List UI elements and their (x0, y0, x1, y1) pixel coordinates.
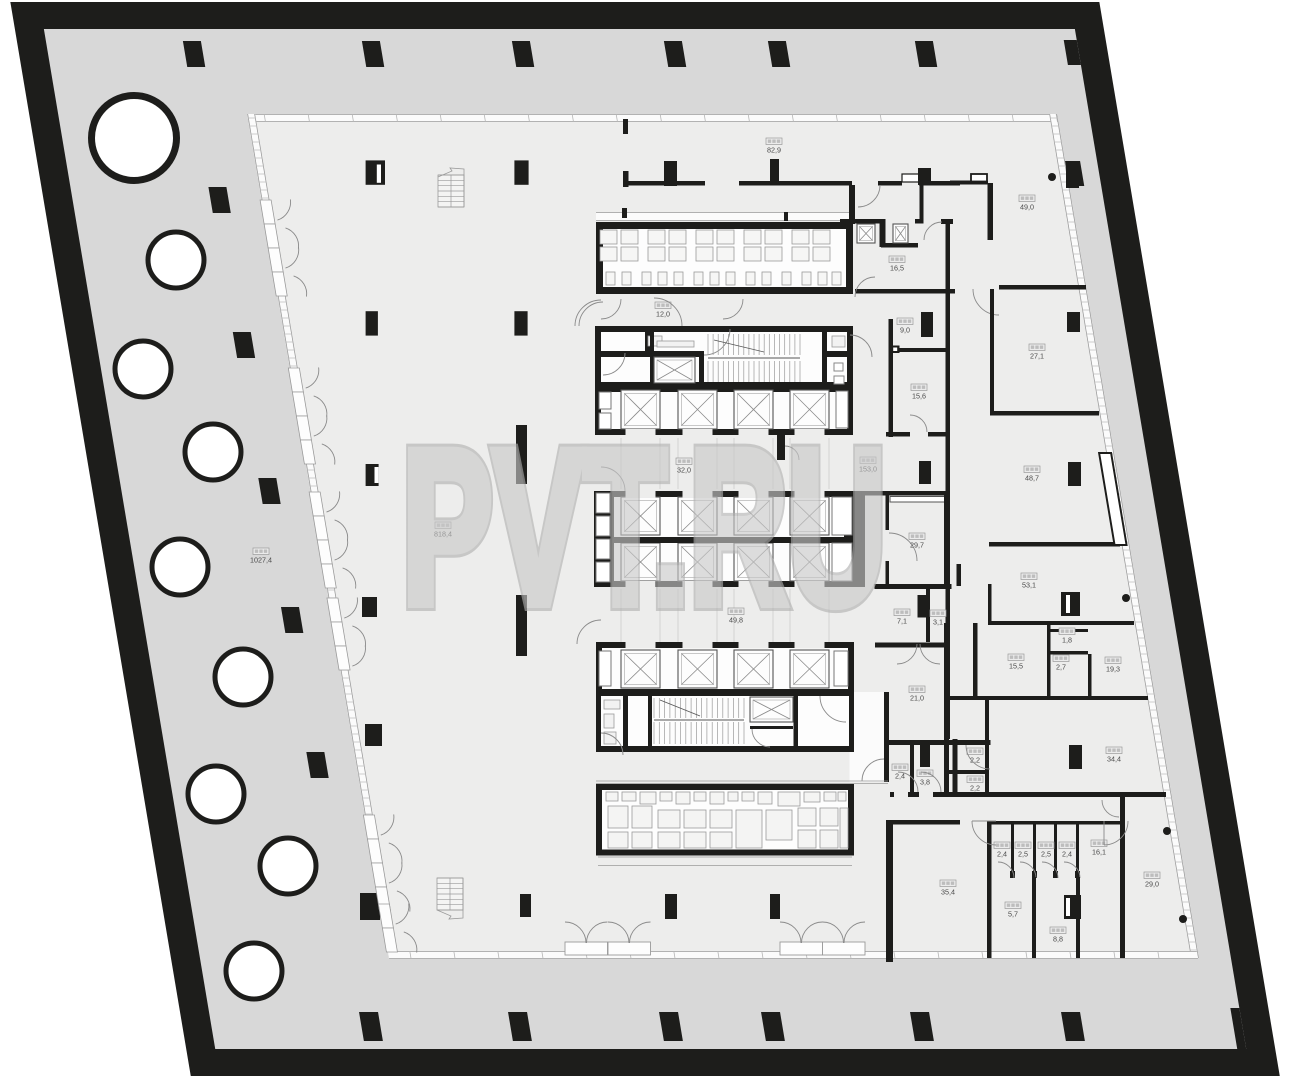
svg-text:7,1: 7,1 (897, 617, 907, 626)
svg-text:27,1: 27,1 (1030, 352, 1044, 361)
svg-text:5,7: 5,7 (1008, 910, 1018, 919)
svg-text:3,1: 3,1 (933, 618, 943, 627)
svg-text:49,0: 49,0 (1020, 203, 1034, 212)
svg-text:29,0: 29,0 (1145, 880, 1159, 889)
svg-text:21,0: 21,0 (910, 694, 924, 703)
svg-text:3,8: 3,8 (920, 778, 930, 787)
svg-text:2,7: 2,7 (1056, 663, 1066, 672)
svg-text:35,4: 35,4 (941, 888, 955, 897)
svg-text:9,0: 9,0 (900, 326, 910, 335)
svg-text:15,6: 15,6 (912, 392, 926, 401)
svg-text:34,4: 34,4 (1107, 755, 1121, 764)
svg-text:16,1: 16,1 (1092, 848, 1106, 857)
svg-text:15,5: 15,5 (1009, 662, 1023, 671)
svg-text:2,2: 2,2 (970, 784, 980, 793)
svg-text:2,4: 2,4 (1062, 850, 1072, 859)
svg-text:53,1: 53,1 (1022, 581, 1036, 590)
svg-text:48,7: 48,7 (1025, 474, 1039, 483)
svg-text:2,5: 2,5 (1018, 850, 1028, 859)
svg-text:2,4: 2,4 (997, 850, 1007, 859)
svg-text:29,7: 29,7 (910, 541, 924, 550)
svg-text:PVT.RU: PVT.RU (402, 404, 886, 650)
svg-text:19,3: 19,3 (1106, 665, 1120, 674)
svg-text:1,8: 1,8 (1062, 636, 1072, 645)
svg-text:1027,4: 1027,4 (250, 556, 272, 565)
svg-text:12,0: 12,0 (656, 310, 670, 319)
svg-text:82,9: 82,9 (767, 146, 781, 155)
svg-text:2,5: 2,5 (1041, 850, 1051, 859)
svg-text:16,5: 16,5 (890, 264, 904, 273)
svg-text:8,8: 8,8 (1053, 935, 1063, 944)
